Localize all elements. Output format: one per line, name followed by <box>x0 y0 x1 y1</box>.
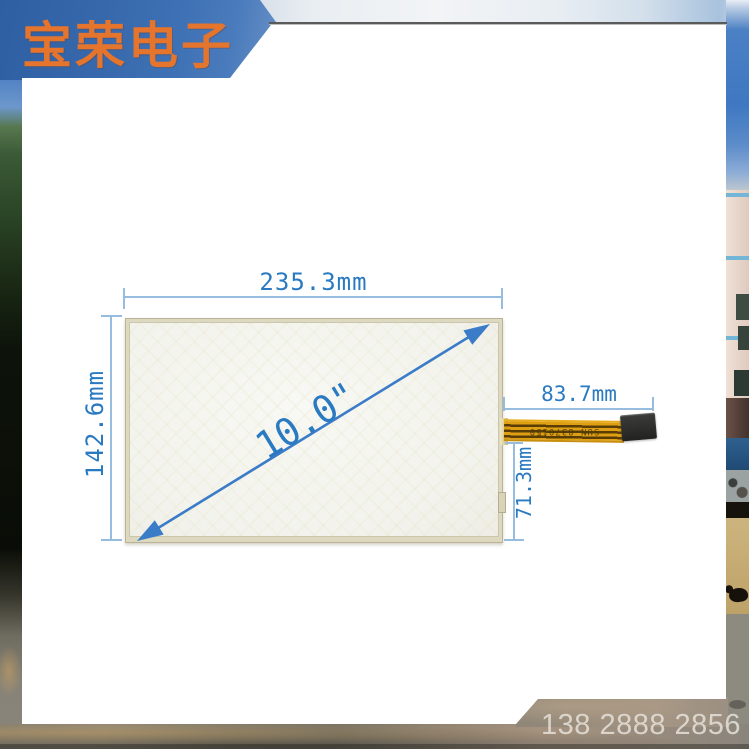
dim-line-cable-length <box>504 408 654 410</box>
dim-label-height: 142.6mm <box>81 370 109 478</box>
product-photo-stage: 宝荣电子 138 2888 2856 SUN-8370150 <box>0 0 749 749</box>
dim-label-cable-length: 83.7mm <box>504 384 654 405</box>
dim-label-width: 235.3mm <box>124 270 503 294</box>
dim-line-height <box>110 316 112 541</box>
dim-tick <box>505 442 523 444</box>
dim-label-cable-offset: 71.3mm <box>512 447 536 519</box>
dim-tick <box>101 539 122 541</box>
dim-tick <box>101 315 122 317</box>
diagonal-arrow <box>0 0 749 749</box>
dim-line-width <box>124 296 503 298</box>
dim-tick <box>504 539 524 541</box>
